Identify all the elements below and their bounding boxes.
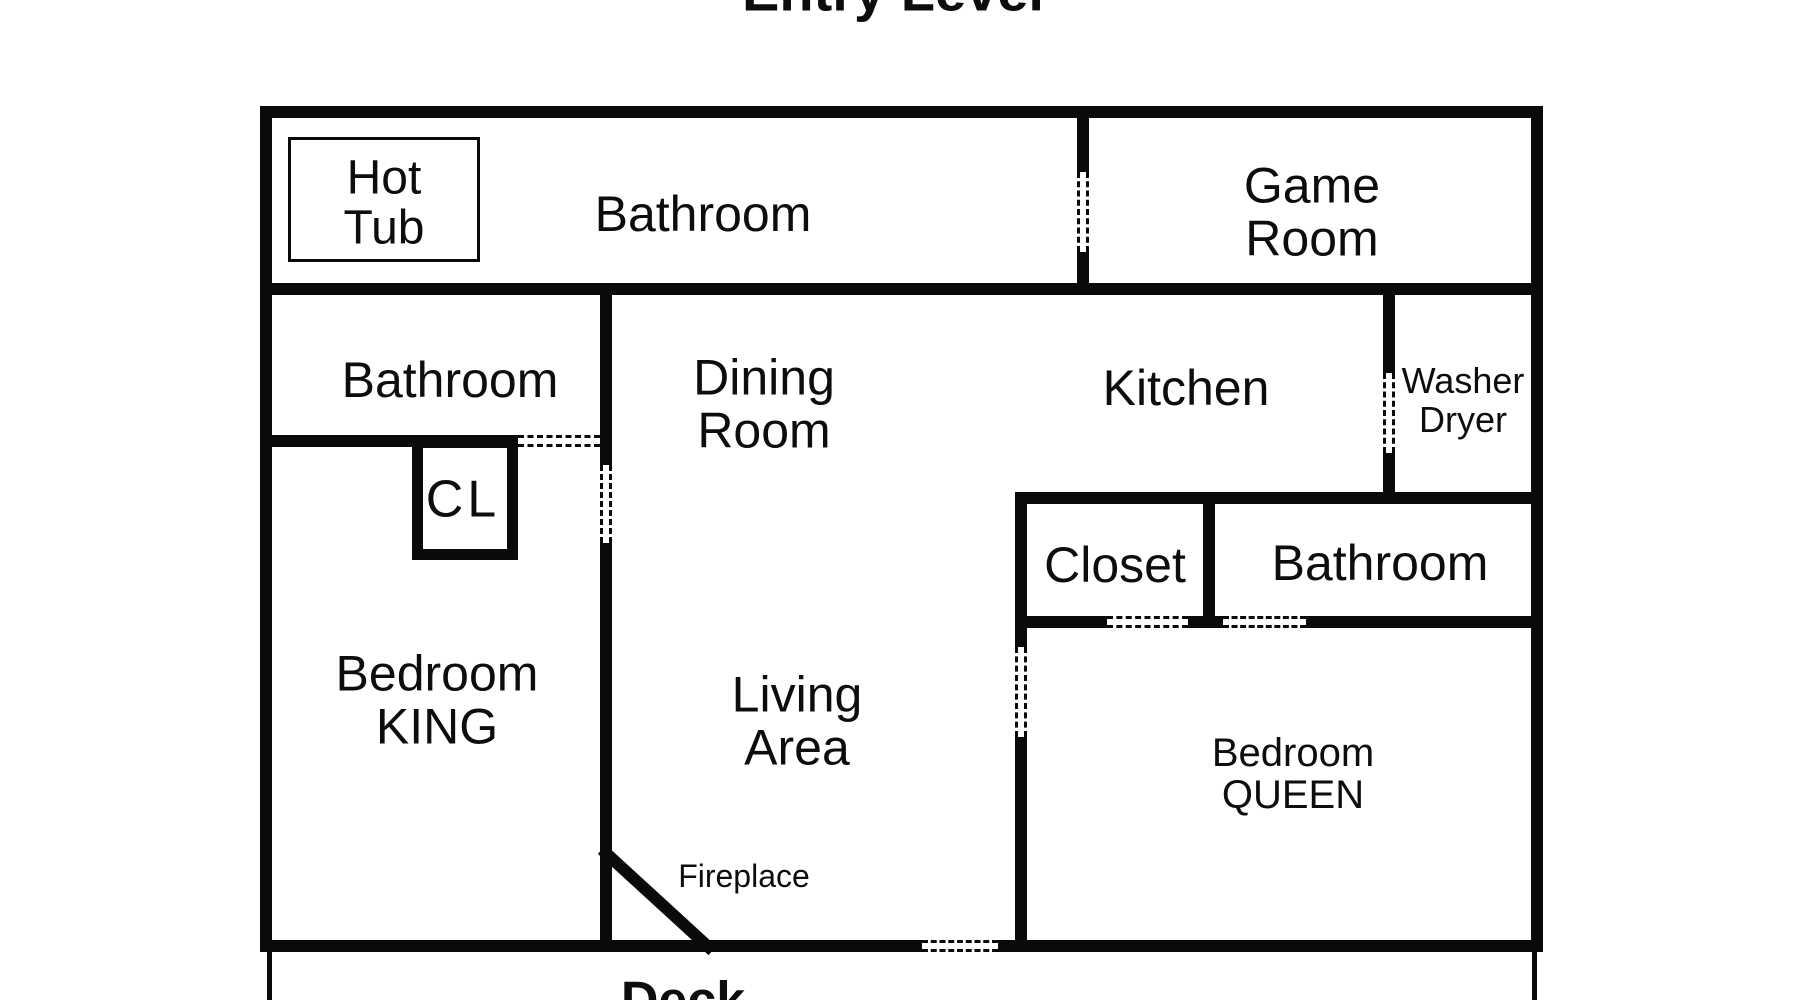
wall-queen-left-upper — [1015, 492, 1027, 647]
wall-outer-right — [1531, 106, 1543, 952]
wall-outer-bottom-right — [998, 940, 1543, 952]
label-cl-closet: CL — [426, 473, 500, 528]
wall-outer-top — [260, 106, 1543, 118]
wall-outer-bottom-left — [260, 940, 922, 952]
wall-main-vertical-upper — [600, 283, 612, 465]
wall-gameroom-divider-lower — [1077, 252, 1089, 295]
page-title: Entry Level — [742, 0, 1044, 21]
label-living-area: Living Area — [732, 669, 863, 774]
label-washer-dryer: Washer Dryer — [1402, 362, 1525, 440]
label-bedroom-queen: Bedroom QUEEN — [1212, 732, 1374, 816]
door-game-room — [1077, 172, 1089, 252]
label-deck: Deck — [621, 974, 745, 1000]
label-kitchen: Kitchen — [1103, 362, 1270, 415]
door-hallway — [518, 435, 600, 447]
label-closet: Closet — [1044, 539, 1186, 592]
wall-gameroom-divider-upper — [1077, 106, 1089, 172]
label-bathroom-left: Bathroom — [342, 354, 559, 407]
label-bathroom-right: Bathroom — [1272, 537, 1489, 590]
label-fireplace: Fireplace — [678, 860, 810, 894]
wall-closet-row-bottom-b — [1188, 616, 1223, 628]
label-game-room: Game Room — [1244, 160, 1380, 265]
door-washer-dryer — [1383, 373, 1395, 453]
wall-closet-row-bottom-a — [1015, 616, 1107, 628]
door-closet — [1107, 616, 1188, 628]
wall-closet-row-top — [1015, 492, 1543, 504]
label-bedroom-king: Bedroom KING — [336, 648, 539, 753]
wall-washer-left-upper — [1383, 283, 1395, 373]
door-bathroom-right — [1223, 616, 1306, 628]
wall-main-vertical-lower — [600, 543, 612, 952]
floor-plan: Entry Level Hot Tub Bathroom Game Room — [0, 0, 1800, 1000]
label-hot-tub: Hot Tub — [344, 154, 425, 255]
deck-rail-left — [267, 952, 272, 1000]
wall-closet-bathroom-divider — [1203, 492, 1215, 628]
door-bedroom-queen — [1015, 647, 1027, 737]
wall-outer-left — [260, 106, 272, 952]
wall-closet-row-bottom-c — [1306, 616, 1543, 628]
door-dining-room — [600, 465, 612, 543]
wall-row1-bottom — [260, 283, 1543, 295]
door-deck — [922, 940, 998, 952]
label-dining-room: Dining Room — [693, 352, 835, 457]
deck-rail-right — [1532, 952, 1537, 1000]
label-bathroom-top: Bathroom — [595, 188, 812, 241]
wall-queen-left-lower — [1015, 737, 1027, 952]
